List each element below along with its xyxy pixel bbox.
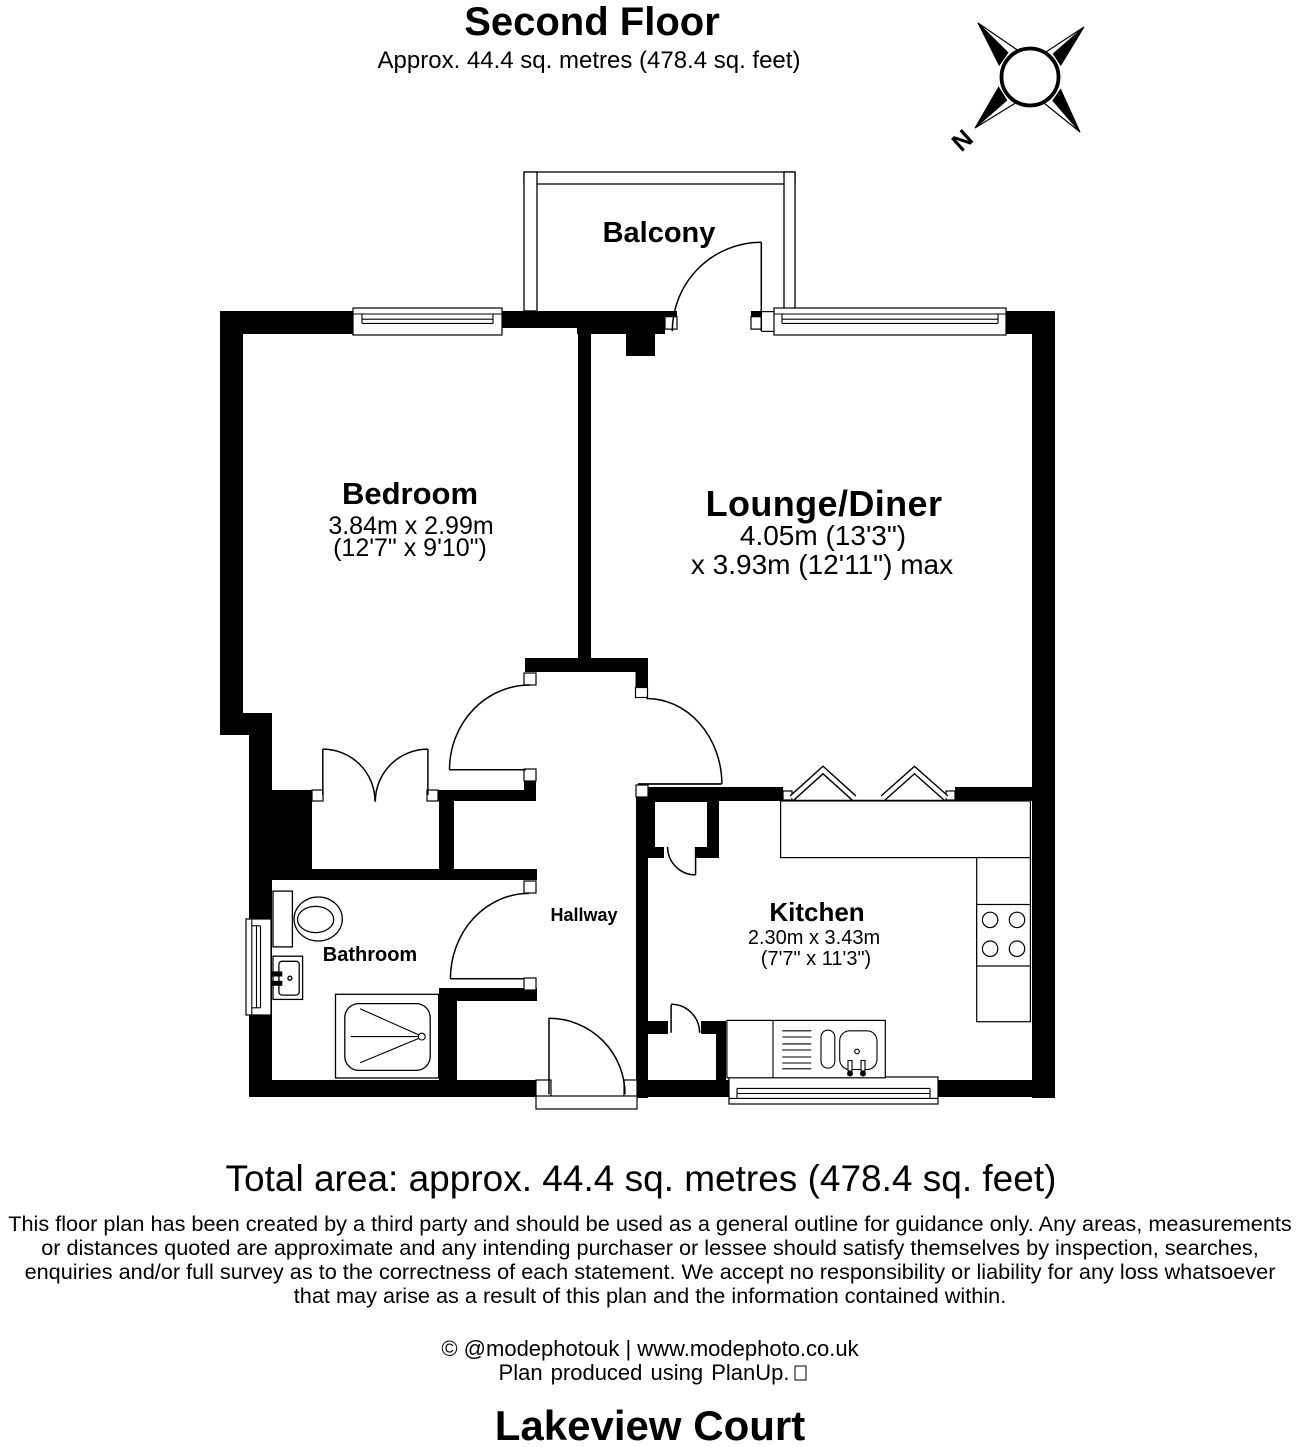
svg-text:Balcony: Balcony [603, 217, 716, 249]
svg-text:4.05m (13'3"): 4.05m (13'3") [740, 520, 906, 551]
svg-text:Kitchen: Kitchen [769, 897, 864, 927]
svg-text:2.30m x 3.43m: 2.30m x 3.43m [748, 927, 880, 949]
svg-text:Approx. 44.4 sq. metres (478.4: Approx. 44.4 sq. metres (478.4 sq. feet) [378, 47, 801, 74]
svg-text:Lounge/Diner: Lounge/Diner [706, 483, 943, 524]
svg-text:This floor plan has been creat: This floor plan has been created by a th… [8, 1211, 1292, 1236]
svg-text:(7'7" x 11'3"): (7'7" x 11'3") [761, 948, 871, 970]
svg-text:that may arise as a result of: that may arise as a result of this plan … [294, 1283, 1006, 1308]
svg-text:Plan produced using PlanUp.: Plan produced using PlanUp. [499, 1360, 790, 1385]
svg-text:x 3.93m (12'11") max: x 3.93m (12'11") max [691, 549, 953, 580]
svg-text:Bathroom: Bathroom [323, 944, 417, 966]
svg-text:Hallway: Hallway [550, 905, 617, 925]
svg-text:or distances quoted are approx: or distances quoted are approximate and … [41, 1235, 1259, 1260]
svg-text:Lakeview Court: Lakeview Court [495, 1402, 805, 1447]
svg-text:(12'7" x 9'10"): (12'7" x 9'10") [333, 534, 487, 562]
svg-text:© @modephotouk | www.modephoto: © @modephotouk | www.modephoto.co.uk [441, 1336, 859, 1361]
svg-text:Total area: approx. 44.4 sq. m: Total area: approx. 44.4 sq. metres (478… [226, 1158, 1057, 1199]
svg-text:enquiries and/or full survey a: enquiries and/or full survey as to the c… [25, 1259, 1276, 1284]
svg-text:Second Floor: Second Floor [464, 0, 720, 44]
svg-text:Bedroom: Bedroom [342, 476, 478, 511]
